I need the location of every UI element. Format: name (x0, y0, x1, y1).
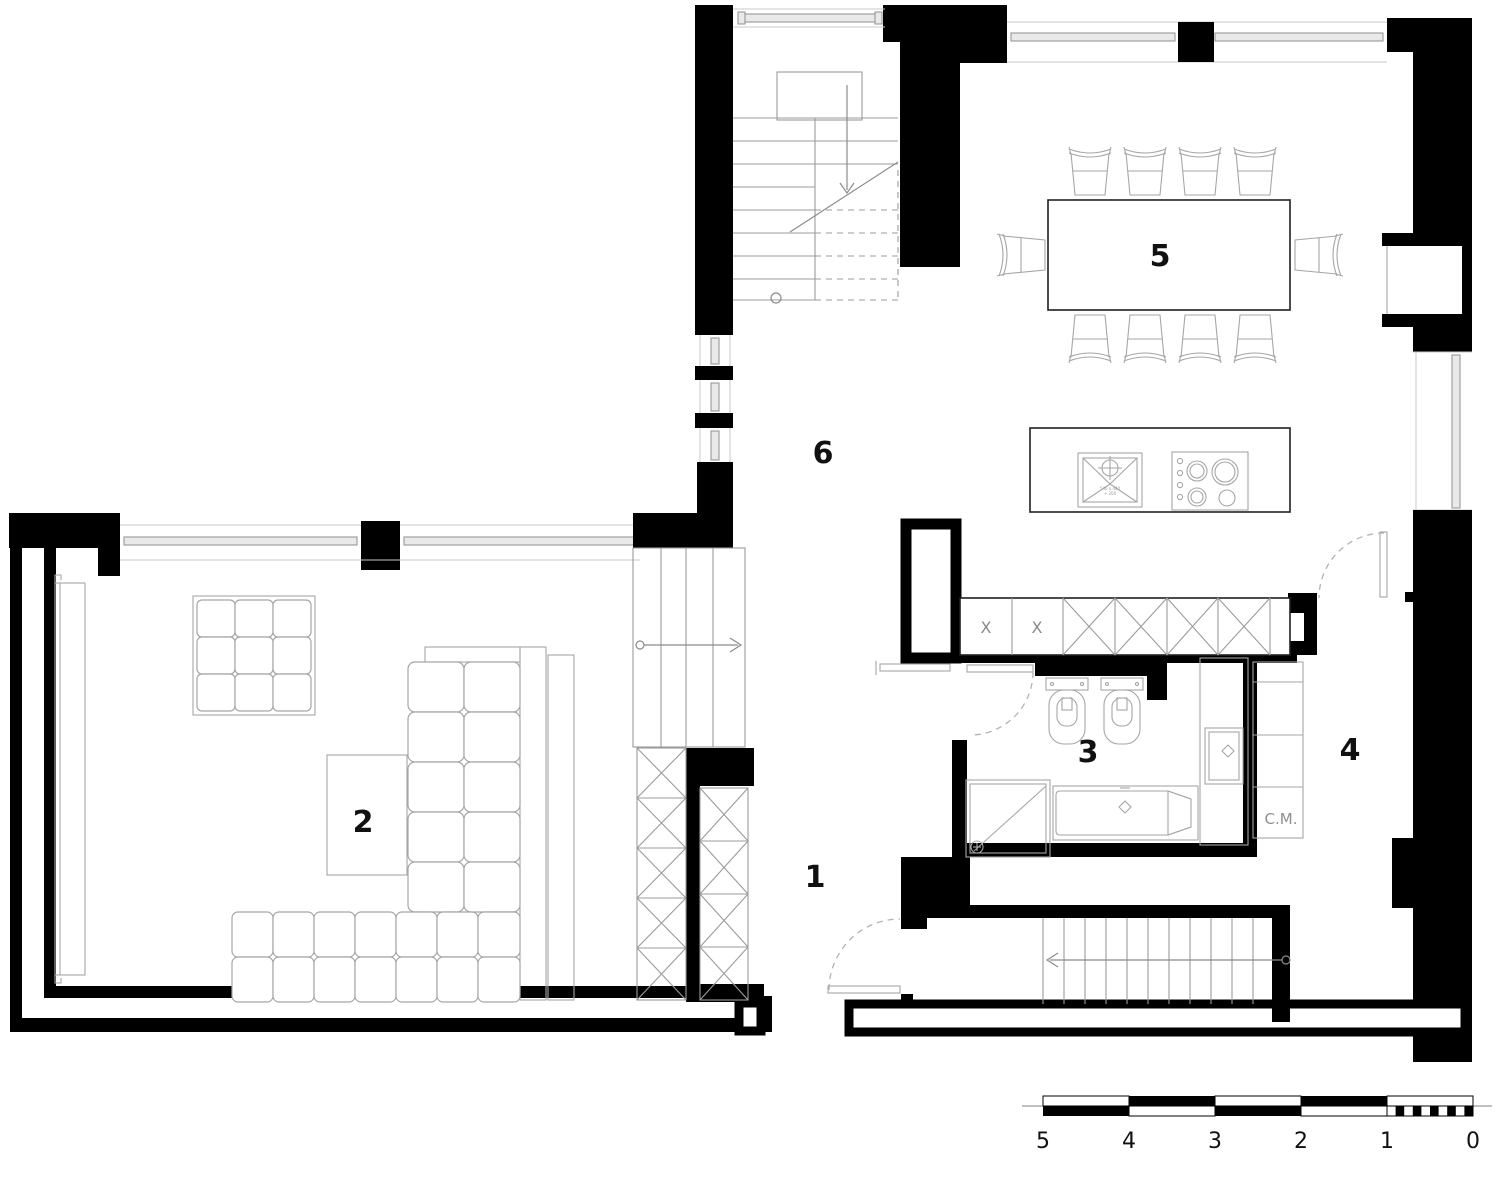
pier-west-window-1 (695, 366, 733, 380)
sink-label-line2: + 200 (1104, 491, 1117, 496)
living-room-furniture: 2 (55, 575, 574, 1002)
vanity-washbasin (1200, 658, 1248, 845)
scale-label-0: 0 (1466, 1129, 1480, 1154)
room-label-5: 5 (1150, 239, 1171, 274)
scale-label-4: 4 (1122, 1129, 1136, 1154)
wall-bath-west (952, 740, 967, 857)
floor-plan-drawing: X X 540 x 440 + 200 (0, 0, 1500, 1186)
room-label-1: 1 (805, 860, 826, 895)
pier-dining-north (1178, 22, 1214, 62)
pier-entry-hollow (739, 1003, 761, 1031)
floor-plan-page: X X 540 x 440 + 200 (0, 0, 1500, 1186)
pier-living-northeast (697, 462, 733, 513)
room-label-4: 4 (1340, 733, 1361, 768)
bidet-icon (1101, 678, 1143, 744)
room4-closet: C.M. (1253, 662, 1303, 838)
wall-bath-north-step (1147, 663, 1167, 700)
dining-set: 5 (997, 147, 1343, 363)
scale-label-1: 1 (1380, 1129, 1394, 1154)
door-stop-nub (1405, 592, 1419, 602)
kitchen-counter: X X (960, 598, 1290, 655)
wall-hall-south-nub (901, 994, 913, 1006)
staircase-upper (733, 72, 898, 303)
wall-hall-south (849, 1004, 1465, 1032)
pier-kitchen-west (906, 524, 956, 658)
room-label-6: 6 (813, 436, 834, 471)
niche-bottom-jamb (1382, 314, 1413, 327)
wall-living-west-inner (44, 548, 56, 998)
wall-east-lower (1413, 510, 1472, 1062)
wall-entry-cap (686, 748, 754, 786)
wardrobe-strip-east (700, 788, 748, 1000)
pier-west-window-2 (695, 413, 733, 428)
wall-south-outer (10, 1018, 772, 1032)
wall-corner-northeast (1387, 18, 1472, 52)
coffee-table: 2 (327, 755, 407, 875)
steps-living-hall (633, 548, 745, 747)
niche-top-jamb (1382, 233, 1413, 246)
staircase-lower (1043, 918, 1290, 1004)
pier-living-northeast-arm (633, 513, 733, 548)
window-east (1413, 352, 1472, 510)
cabinet-mark-1: X (981, 618, 992, 637)
door-bathroom (967, 665, 1033, 735)
scale-label-3: 3 (1208, 1129, 1222, 1154)
stair-break-line (790, 162, 898, 232)
pier-living-north (361, 521, 400, 570)
wall-bath-east (1243, 663, 1257, 857)
ottoman-grid (193, 596, 315, 715)
pier-stair-west-b (927, 857, 970, 918)
window-stairblock-north (733, 9, 885, 27)
room-label-3: 3 (1078, 735, 1099, 770)
stair-landing (777, 72, 862, 120)
room-label-2: 2 (353, 805, 374, 840)
bathroom-fixtures: 3 (966, 658, 1248, 857)
pier-east-inner (1392, 838, 1413, 908)
pier-living-northwest-return (98, 548, 120, 576)
wall-entry-vertical (686, 786, 700, 986)
cabinet-mark-2: X (1032, 618, 1043, 637)
scale-label-2: 2 (1294, 1129, 1308, 1154)
wall-west-outer (10, 513, 22, 1032)
pier-living-northwest (9, 513, 120, 548)
wall-stair-north (970, 905, 1290, 918)
niche-east-wall (1413, 246, 1462, 314)
door-entry (828, 919, 900, 993)
wall-stairblock-west (695, 5, 733, 335)
bathtub-icon (1053, 786, 1198, 840)
door-room4-north (1319, 532, 1387, 598)
kitchen-island: 540 x 440 + 200 (1030, 428, 1290, 512)
wall-bath-north (1035, 663, 1147, 676)
window-west-strip (700, 335, 730, 462)
wall-unit-west (55, 575, 85, 983)
scale-bar: 5 4 3 2 1 0 (1022, 1096, 1492, 1154)
pier-stair-west-a (901, 857, 927, 929)
wardrobe-strip-west (637, 748, 686, 1000)
wall-stairblock-east (883, 5, 1007, 267)
cm-label: C.M. (1265, 810, 1298, 828)
scale-label-5: 5 (1036, 1129, 1050, 1154)
